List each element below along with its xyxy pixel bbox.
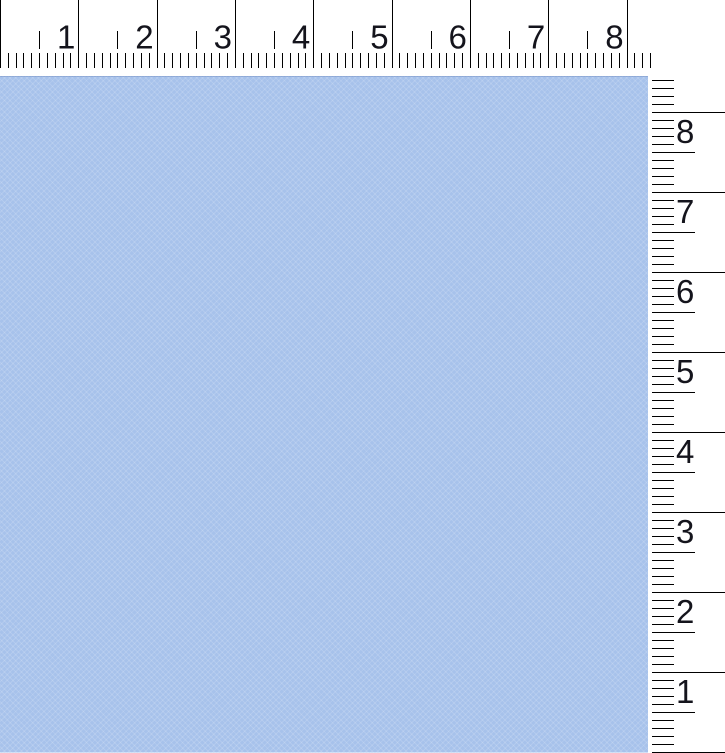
ruler-number: 3	[214, 19, 232, 56]
ruler-number: 4	[676, 433, 694, 470]
ruler-number: 1	[57, 19, 75, 56]
ruler-number: 2	[676, 593, 694, 630]
ruler-number: 6	[449, 19, 467, 56]
desktop-canvas[interactable]	[0, 76, 648, 753]
ruler-number: 7	[527, 19, 545, 56]
ruler-number: 8	[605, 19, 623, 56]
ruler-number: 8	[676, 113, 694, 150]
ruler-number: 5	[370, 19, 388, 56]
ruler-number: 4	[292, 19, 310, 56]
ruler-number: 1	[676, 673, 694, 710]
vertical-ruler[interactable]: 87654321	[648, 76, 725, 753]
ruler-number: 2	[135, 19, 153, 56]
ruler-number: 7	[676, 193, 694, 230]
ruler-number: 6	[676, 273, 694, 310]
ruler-number: 3	[676, 513, 694, 550]
horizontal-ruler[interactable]: 12345678	[0, 0, 725, 71]
ruler-number: 5	[676, 353, 694, 390]
